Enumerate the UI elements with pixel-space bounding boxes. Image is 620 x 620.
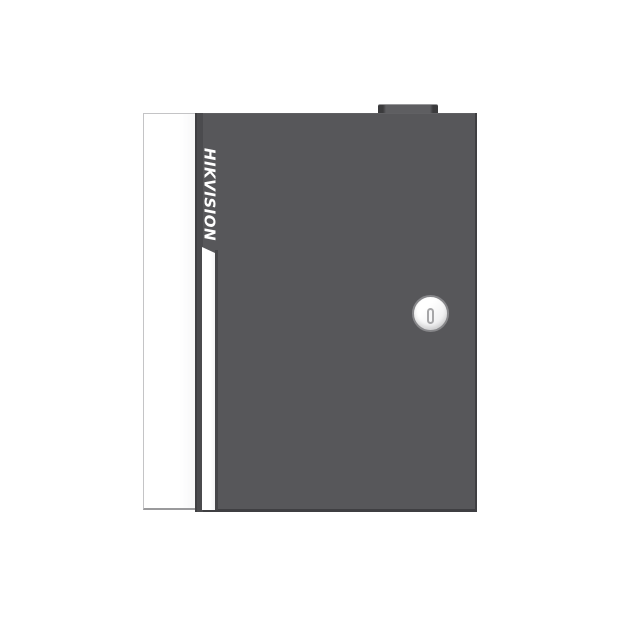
product-photo-background: HIKVISION (0, 0, 620, 620)
hikvision-logo: HIKVISION (201, 140, 218, 250)
accent-stripe-shadow (215, 250, 218, 510)
access-controller-enclosure: HIKVISION (143, 113, 477, 512)
door-lock (412, 295, 449, 332)
door-accent-stripe (202, 247, 215, 510)
enclosure-side-panel (143, 113, 195, 510)
keyhole-icon (427, 308, 434, 324)
